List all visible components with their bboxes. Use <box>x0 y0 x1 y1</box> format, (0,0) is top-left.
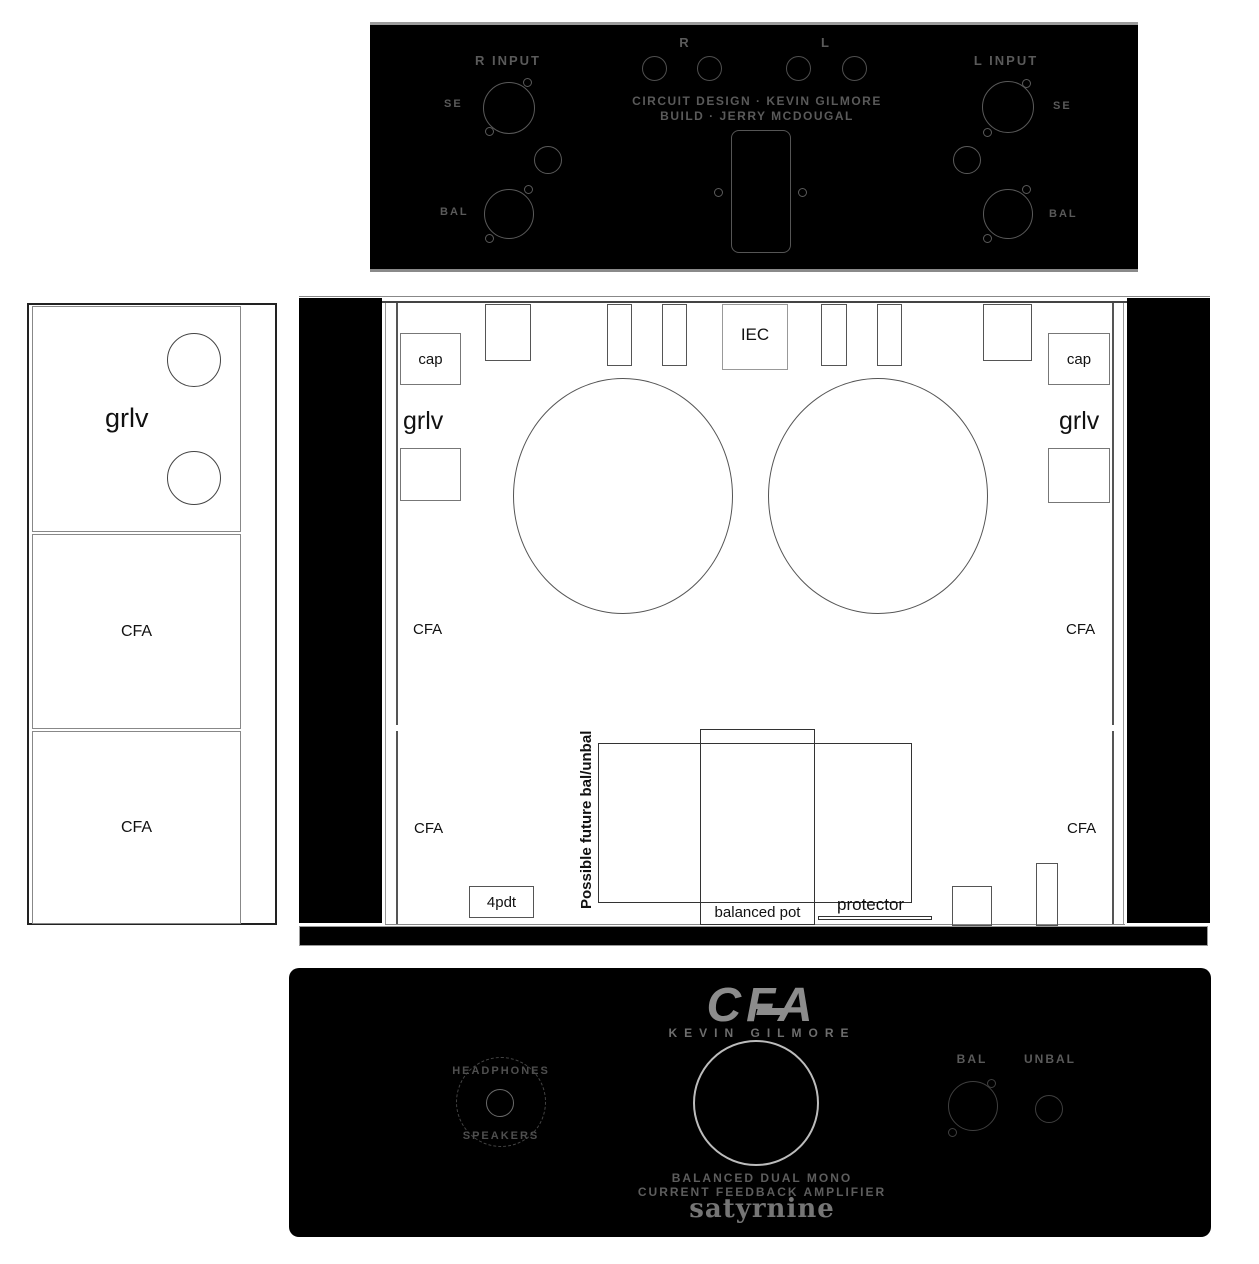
transformer-icon <box>768 378 988 614</box>
side-grlv-label: grlv <box>105 403 149 434</box>
tagline-1: BALANCED DUAL MONO <box>612 1171 912 1185</box>
top-view-drawing: cap cap IEC grlv grlv CFA CFA CFA CFA Po… <box>296 295 1213 947</box>
screw-hole-icon <box>948 1128 957 1137</box>
volume-knob-icon <box>693 1040 819 1166</box>
credit-line-2: BUILD · JERRY MCDOUGAL <box>607 109 907 123</box>
bal-label-right: BAL <box>1049 208 1078 220</box>
heatsink-right <box>1127 298 1210 923</box>
small-part-box <box>952 886 992 926</box>
credit-line-1: CIRCUIT DESIGN · KEVIN GILMORE <box>607 94 907 108</box>
amplifier-design-mockup: R L CIRCUIT DESIGN · KEVIN GILMORE BUILD… <box>0 0 1259 1264</box>
chassis-wall-line <box>1112 303 1114 725</box>
cfa-logo: CFA <box>662 978 862 1033</box>
l-input-label: L INPUT <box>936 53 1076 68</box>
se-label-left: SE <box>444 98 463 110</box>
chassis-wall-line <box>1123 303 1124 924</box>
side-grlv-box: grlv <box>32 306 241 532</box>
cfa-label-upper-left: CFA <box>413 621 442 638</box>
cfa-label-lower-right: CFA <box>1067 820 1096 837</box>
capacitor-icon <box>167 333 221 387</box>
binding-post-icon <box>697 56 722 81</box>
chassis-wall-line <box>396 303 398 725</box>
bal-label-left: BAL <box>440 206 469 218</box>
designer-label: KEVIN GILMORE <box>612 1026 912 1040</box>
iec-cutout: IEC <box>722 304 788 370</box>
screw-hole-icon <box>1022 79 1031 88</box>
r-input-label: R INPUT <box>438 53 578 68</box>
grlv-box-right <box>1048 448 1110 503</box>
iec-label: IEC <box>723 325 787 345</box>
small-part-box <box>1036 863 1058 926</box>
xlr-bal-connector-icon <box>983 189 1033 239</box>
chassis-top-edge <box>299 296 1210 303</box>
small-jack-icon <box>953 146 981 174</box>
cap-box-right: cap <box>1048 333 1110 385</box>
grlv-box-left <box>400 448 461 501</box>
chassis-wall-line <box>1112 731 1114 924</box>
screw-hole-icon <box>485 234 494 243</box>
rear-cutout <box>821 304 847 366</box>
capacitor-icon <box>167 451 221 505</box>
screw-hole-icon <box>523 78 532 87</box>
chassis-wall-line <box>396 731 398 924</box>
side-cfa-label-lower: CFA <box>121 819 152 837</box>
bal-output-label: BAL <box>932 1052 1012 1066</box>
rear-cutout <box>485 304 531 361</box>
unbal-output-label: UNBAL <box>1010 1052 1090 1066</box>
rear-cutout <box>662 304 687 366</box>
side-cfa-label-upper: CFA <box>121 623 152 641</box>
se-label-right: SE <box>1053 100 1072 112</box>
rear-l-channel-label: L <box>811 35 841 50</box>
heatsink-left <box>299 298 382 923</box>
screw-hole-icon <box>714 188 723 197</box>
front-panel: CFA KEVIN GILMORE HEADPHONES SPEAKERS BA… <box>289 968 1211 1237</box>
binding-post-icon <box>842 56 867 81</box>
iec-inlet-icon <box>731 130 791 253</box>
screw-hole-icon <box>983 128 992 137</box>
cap-label-left: cap <box>418 351 442 368</box>
balanced-pot-label: balanced pot <box>700 904 815 921</box>
side-cfa-box-upper: CFA <box>32 534 241 729</box>
rear-r-channel-label: R <box>670 35 700 50</box>
brand-wordmark: satyrnine <box>662 1194 862 1224</box>
rear-cutout <box>983 304 1032 361</box>
xlr-bal-connector-icon <box>484 189 534 239</box>
cap-label-right: cap <box>1067 351 1091 368</box>
future-balunbal-note: Possible future bal/unbal <box>578 731 595 909</box>
binding-post-icon <box>642 56 667 81</box>
grlv-label-left: grlv <box>403 407 443 436</box>
rear-cutout <box>607 304 632 366</box>
front-rail <box>299 926 1208 946</box>
xlr-output-icon <box>948 1081 998 1131</box>
chassis-wall-line <box>385 303 386 924</box>
4pdt-label: 4pdt <box>487 894 516 911</box>
screw-hole-icon <box>524 185 533 194</box>
4pdt-box: 4pdt <box>469 886 534 918</box>
speakers-label: SPEAKERS <box>421 1130 581 1142</box>
cfa-logo-bar <box>756 1008 788 1015</box>
selector-shaft-icon <box>486 1089 514 1117</box>
cap-box-left: cap <box>400 333 461 385</box>
unbal-jack-icon <box>1035 1095 1063 1123</box>
balanced-pot-box <box>700 729 815 925</box>
xlr-se-connector-icon <box>483 82 535 134</box>
screw-hole-icon <box>987 1079 996 1088</box>
side-cfa-box-lower: CFA <box>32 731 241 924</box>
cfa-label-upper-right: CFA <box>1066 621 1095 638</box>
rear-cutout <box>877 304 902 366</box>
screw-hole-icon <box>983 234 992 243</box>
headphones-label: HEADPHONES <box>421 1065 581 1077</box>
small-jack-icon <box>534 146 562 174</box>
grlv-label-right: grlv <box>1059 407 1099 436</box>
transformer-icon <box>513 378 733 614</box>
screw-hole-icon <box>798 188 807 197</box>
binding-post-icon <box>786 56 811 81</box>
cfa-label-lower-left: CFA <box>414 820 443 837</box>
protector-board <box>818 916 932 920</box>
screw-hole-icon <box>485 127 494 136</box>
protector-label: protector <box>837 895 904 915</box>
side-view-drawing: grlv CFA CFA <box>27 303 277 925</box>
screw-hole-icon <box>1022 185 1031 194</box>
rear-panel: R L CIRCUIT DESIGN · KEVIN GILMORE BUILD… <box>370 22 1138 272</box>
xlr-se-connector-icon <box>982 81 1034 133</box>
